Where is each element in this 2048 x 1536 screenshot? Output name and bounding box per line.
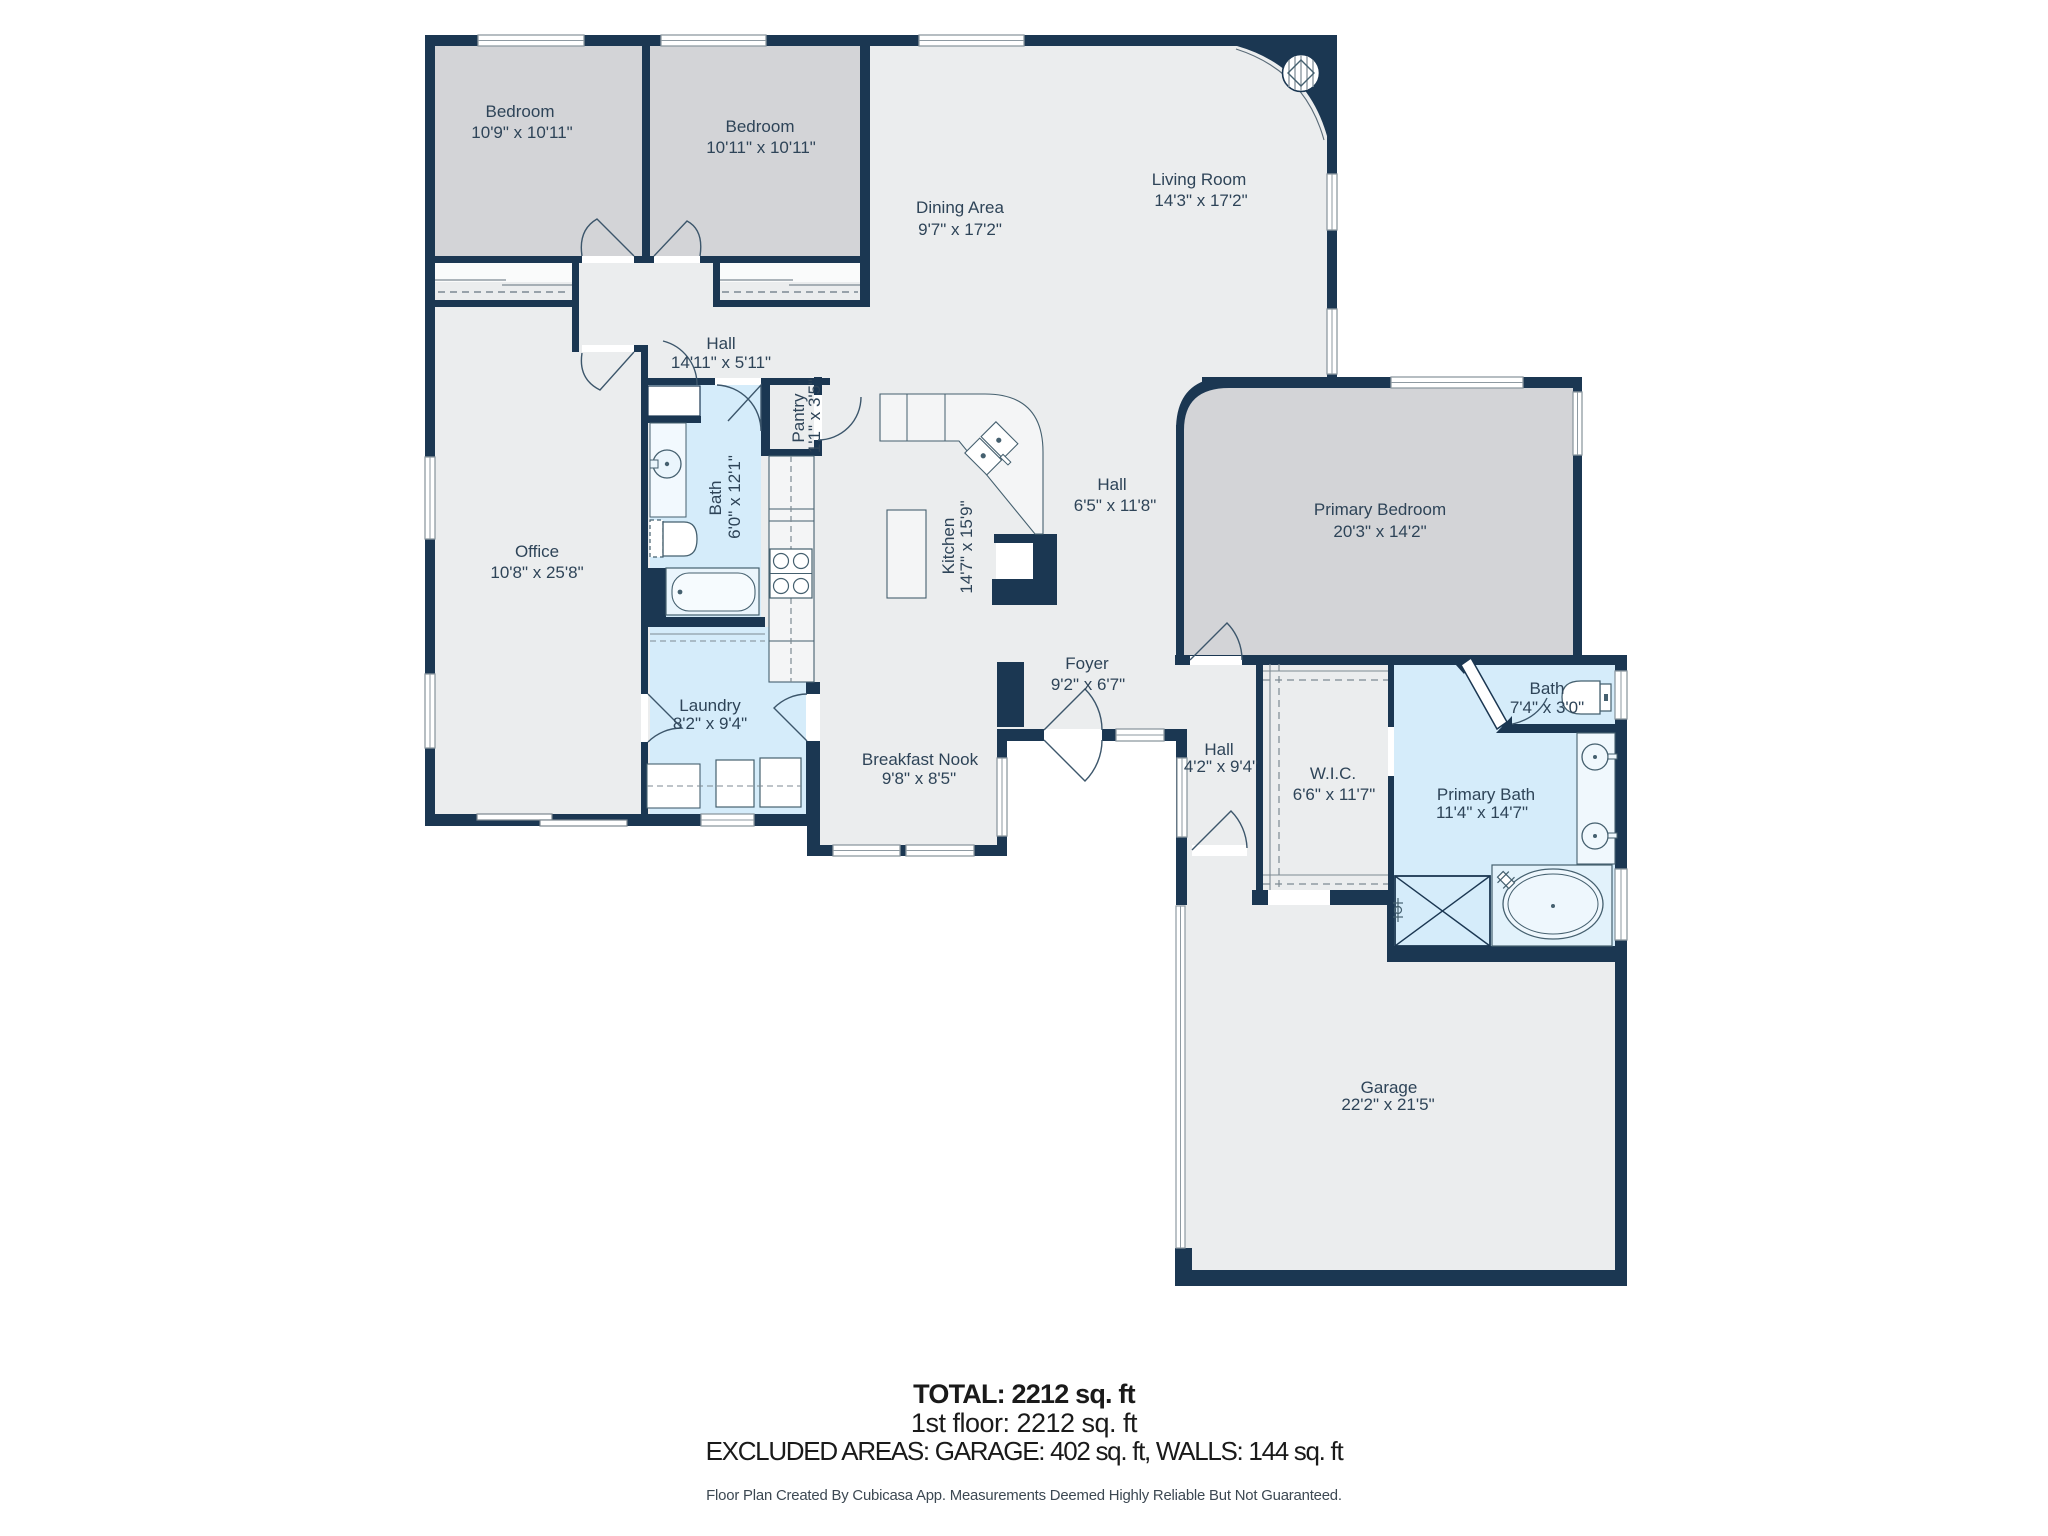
svg-text:Hall: Hall — [706, 334, 735, 353]
svg-text:Laundry: Laundry — [679, 696, 741, 715]
svg-text:EXCLUDED AREAS: GARAGE: 402 sq: EXCLUDED AREAS: GARAGE: 402 sq. ft, WALL… — [706, 1436, 1345, 1466]
svg-text:6'5" x 11'8": 6'5" x 11'8" — [1074, 496, 1157, 515]
svg-text:Kitchen: Kitchen — [939, 518, 958, 575]
svg-text:11'4" x 14'7": 11'4" x 14'7" — [1436, 803, 1528, 822]
svg-text:20'3" x 14'2": 20'3" x 14'2" — [1333, 522, 1426, 541]
svg-text:14'11" x 5'11": 14'11" x 5'11" — [671, 353, 771, 372]
svg-text:Breakfast Nook: Breakfast Nook — [862, 750, 979, 769]
svg-text:Bath: Bath — [1530, 679, 1565, 698]
svg-text:Dining Area: Dining Area — [916, 198, 1004, 217]
svg-text:Office: Office — [515, 542, 559, 561]
svg-text:1st floor: 2212 sq. ft: 1st floor: 2212 sq. ft — [911, 1408, 1138, 1438]
svg-text:Bedroom: Bedroom — [726, 117, 795, 136]
svg-text:9'7" x 17'2": 9'7" x 17'2" — [918, 220, 1002, 239]
svg-text:8'2" x 9'4": 8'2" x 9'4" — [673, 714, 747, 733]
svg-text:14'7" x 15'9": 14'7" x 15'9" — [957, 500, 976, 593]
svg-text:TOTAL: 2212 sq. ft: TOTAL: 2212 sq. ft — [913, 1379, 1135, 1409]
svg-text:10'8" x 25'8": 10'8" x 25'8" — [490, 563, 583, 582]
svg-text:1'1" x 3'5": 1'1" x 3'5" — [805, 379, 824, 453]
svg-text:10'9" x 10'11": 10'9" x 10'11" — [471, 123, 572, 142]
svg-text:Floor Plan Created By Cubicasa: Floor Plan Created By Cubicasa App. Meas… — [706, 1488, 1342, 1504]
svg-text:6'6" x 11'7": 6'6" x 11'7" — [1293, 785, 1376, 804]
svg-text:W.I.C.: W.I.C. — [1310, 764, 1356, 783]
svg-text:14'3" x 17'2": 14'3" x 17'2" — [1154, 191, 1247, 210]
svg-text:Hall: Hall — [1097, 475, 1126, 494]
svg-text:10'11" x 10'11": 10'11" x 10'11" — [706, 138, 816, 157]
svg-text:9'8" x 8'5": 9'8" x 8'5" — [882, 769, 956, 788]
svg-text:Primary Bedroom: Primary Bedroom — [1314, 500, 1446, 519]
svg-text:Bedroom: Bedroom — [486, 102, 555, 121]
svg-text:7'4" x 3'0": 7'4" x 3'0" — [1510, 698, 1584, 717]
svg-text:Bath: Bath — [706, 481, 725, 516]
svg-text:Foyer: Foyer — [1065, 654, 1109, 673]
svg-text:22'2" x 21'5": 22'2" x 21'5" — [1341, 1095, 1434, 1114]
svg-text:Primary Bath: Primary Bath — [1437, 785, 1535, 804]
svg-text:4'2" x 9'4": 4'2" x 9'4" — [1184, 757, 1258, 776]
svg-text:Living Room: Living Room — [1152, 170, 1247, 189]
svg-text:9'2" x 6'7": 9'2" x 6'7" — [1051, 675, 1125, 694]
svg-text:6'0" x 12'1": 6'0" x 12'1" — [725, 455, 744, 539]
